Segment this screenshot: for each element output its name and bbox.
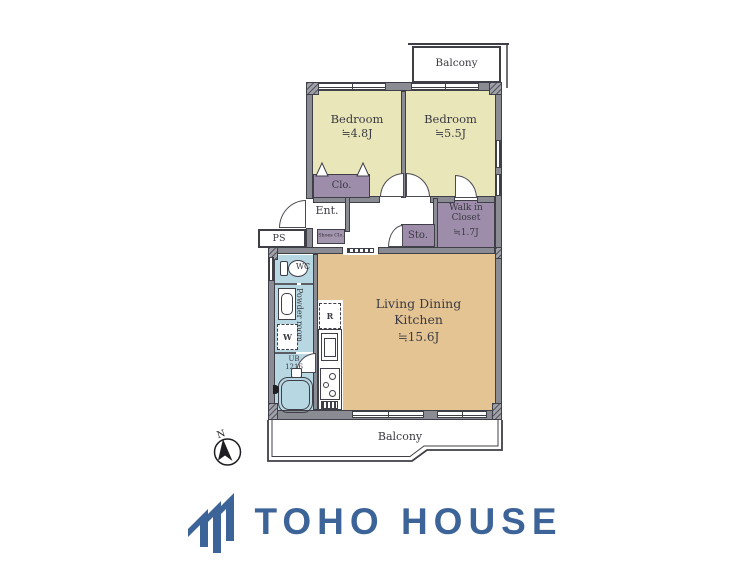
ldk-area: ≒15.6J: [330, 330, 507, 344]
vanity-sink: [281, 293, 293, 315]
wic-area: ≒1.7J: [437, 228, 495, 239]
compass-circle: [215, 439, 241, 465]
entrance-label: Ent.: [306, 205, 348, 218]
bathtub-inner: [281, 380, 310, 410]
wall-wc-powder-a: [275, 283, 297, 285]
shoes-closet-label: Shoes Clo.: [318, 233, 344, 239]
unit-bath-label-1: UB: [275, 355, 313, 363]
balcony-bottom-label: Balcony: [283, 431, 517, 444]
wall-lower-top-b: [378, 247, 495, 254]
ldk-window-left: [352, 411, 424, 418]
stove-burner-1: [329, 373, 336, 380]
powder-room-label: Powder room: [294, 288, 303, 350]
right-wall-window-2: [496, 174, 501, 196]
right-wall-window-1: [496, 140, 501, 168]
wic-name-2: Closet: [437, 213, 495, 224]
bedroom2-name: Bedroom: [406, 113, 495, 127]
closet-label: Clo.: [313, 180, 370, 192]
wall-wc-powder-b: [301, 283, 313, 285]
stove-burner-2: [323, 382, 329, 388]
unit-bath-label-2: 1216: [275, 363, 313, 371]
corner-hatch-bottom-left: [268, 403, 278, 420]
wall-powder-bath: [275, 352, 296, 354]
bedroom2-window: [411, 83, 479, 90]
corner-hatch-right-mid: [495, 247, 502, 259]
wall-under-bedrooms-c: [477, 196, 495, 203]
wall-left-upper-2: [306, 228, 313, 248]
wall-left-upper: [306, 91, 313, 199]
wall-lower-top-a: [268, 247, 343, 254]
ldk-window-right: [437, 411, 487, 418]
ldk-sliding-door: [347, 248, 374, 253]
bedroom1-area: ≒4.8J: [313, 128, 401, 141]
toilet-tank: [280, 261, 288, 276]
entrance-door-arc: [279, 200, 306, 228]
compass-north-label: N: [216, 428, 227, 441]
floorplan-page: Balcony: [0, 0, 750, 563]
bedroom1-window: [318, 83, 386, 90]
corner-hatch-top-right: [489, 82, 502, 95]
wc-label: WC: [292, 262, 314, 271]
kitchen-step-box: [321, 401, 338, 409]
pipe-space-label: PS: [258, 233, 300, 244]
toho-house-logo-icon: [187, 489, 239, 555]
brand-name: TOHO HOUSE: [254, 501, 562, 543]
stove-burner-3: [329, 390, 336, 397]
bedroom2-area: ≒5.5J: [406, 128, 495, 141]
wc-window: [269, 257, 274, 281]
corner-hatch-bottom-right: [492, 403, 502, 420]
compass-needle-icon: [218, 439, 233, 461]
footer-brand: TOHO HOUSE: [0, 487, 750, 557]
bedroom1-name: Bedroom: [313, 113, 401, 127]
washer-label: W: [283, 332, 292, 342]
ldk-name-2: Kitchen: [330, 313, 507, 328]
balcony-top-label: Balcony: [412, 57, 501, 69]
storage-label: Sto.: [401, 230, 435, 242]
ldk-name-1: Living Dining: [330, 297, 507, 312]
